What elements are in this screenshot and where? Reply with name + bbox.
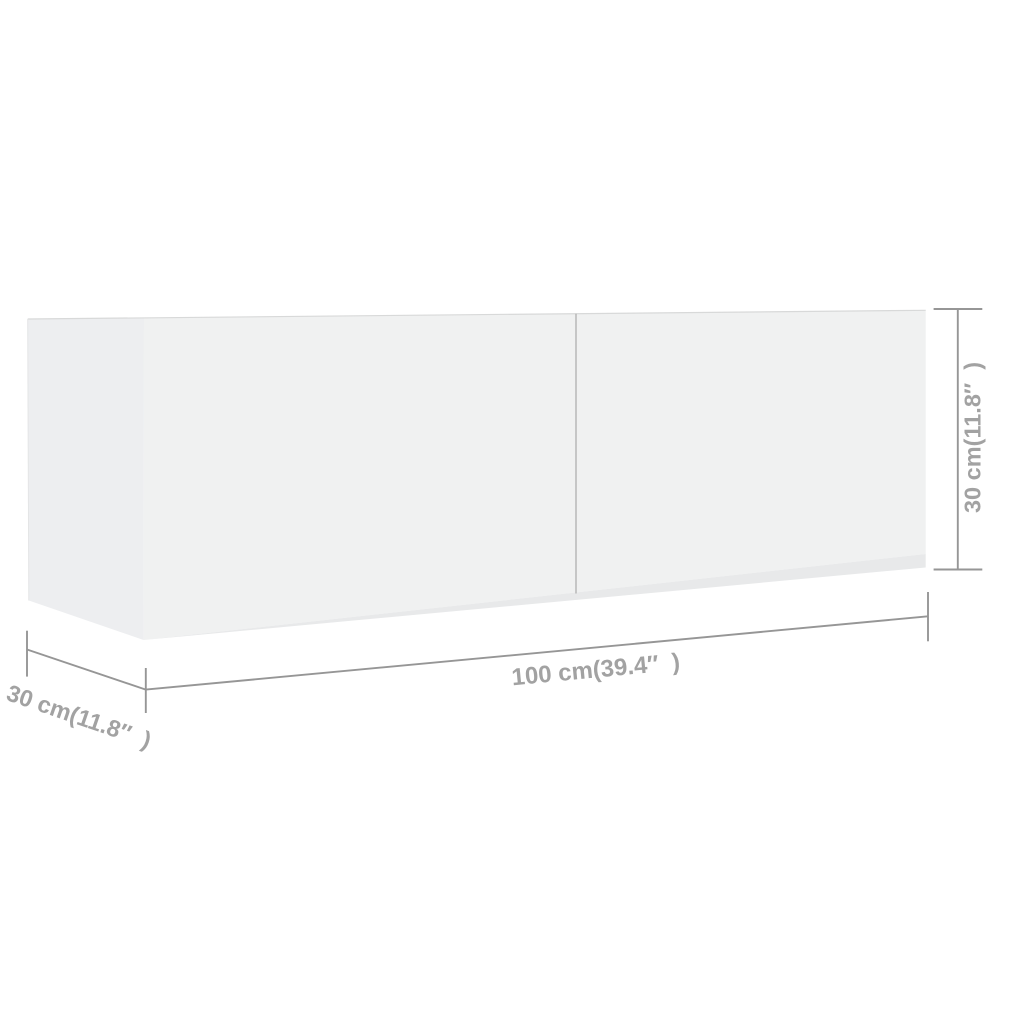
svg-text:30 cm(11.8″ ): 30 cm(11.8″ ) — [960, 362, 986, 513]
